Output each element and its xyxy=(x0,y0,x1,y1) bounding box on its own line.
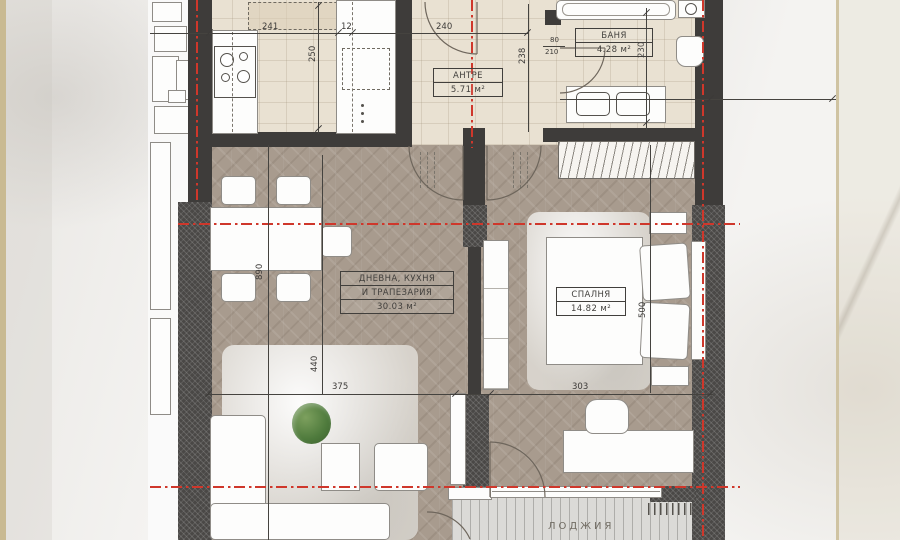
room-label-antre: АНТРЕ 5.71 м² xyxy=(433,68,503,97)
door-arc-bedroom-loggia xyxy=(490,442,545,497)
room-area-bedroom: 14.82 м² xyxy=(557,301,625,315)
dim-hall-depth: 238 xyxy=(519,48,528,64)
room-label-bedroom: СПАЛНЯ 14.82 м² xyxy=(556,287,626,316)
dim-hall-width: 240 xyxy=(436,23,452,32)
room-area-antre: 5.71 м² xyxy=(434,82,502,96)
dim-line-sofa-zone xyxy=(322,155,323,395)
dim-bedroom-length: 500 xyxy=(639,302,648,318)
room-name-banya: БАНЯ xyxy=(576,29,652,42)
room-name-antre: АНТРЕ xyxy=(434,69,502,82)
axis-line-left xyxy=(196,0,198,202)
door-arc-bedroom xyxy=(487,146,541,200)
dim-door-height: 210 xyxy=(545,49,558,56)
dim-line-widths xyxy=(208,394,713,395)
room-name-bedroom: СПАЛНЯ xyxy=(557,288,625,301)
axis-line-upper-horizontal xyxy=(178,223,740,225)
dim-line-bedroom-length xyxy=(650,145,651,393)
dim-bedroom-width: 303 xyxy=(572,383,588,392)
axis-line-lower-horizontal xyxy=(150,486,740,488)
dim-line-kitchen-depth xyxy=(318,2,319,134)
door-arc-living-loggia xyxy=(427,512,470,539)
dim-kitchen-depth: 250 xyxy=(309,46,318,62)
dim-line-bath-depth xyxy=(646,8,647,130)
room-label-loggia: ЛОДЖИЯ xyxy=(548,521,614,532)
dim-line-living-length xyxy=(268,145,269,540)
room-name-living-line1: ДНЕВНА, КУХНЯ xyxy=(341,272,453,285)
dim-living-width: 375 xyxy=(332,383,348,392)
room-area-banya: 4.28 м² xyxy=(576,42,652,56)
room-name-living-line2: И ТРАПЕЗАРИЯ xyxy=(341,285,453,299)
dim-line-hall-depth xyxy=(528,4,529,132)
dim-line-bath-right xyxy=(560,99,836,100)
axis-line-right xyxy=(702,0,704,540)
dim-sofa-zone: 440 xyxy=(311,356,320,372)
page: { "rooms": { "antre": {"name": "АНТРЕ", … xyxy=(0,0,900,540)
room-area-living: 30.03 м² xyxy=(341,299,453,313)
dim-wall-12: 12 xyxy=(341,23,352,32)
door-arc-living xyxy=(409,146,463,200)
dim-living-length: 890 xyxy=(256,264,265,280)
room-label-living: ДНЕВНА, КУХНЯ И ТРАПЕЗАРИЯ 30.03 м² xyxy=(340,271,454,314)
dim-line-door xyxy=(543,46,565,47)
room-label-banya: БАНЯ 4.28 м² xyxy=(575,28,653,57)
dim-door-width: 80 xyxy=(550,37,559,44)
dim-kitchen-width: 241 xyxy=(262,23,278,32)
